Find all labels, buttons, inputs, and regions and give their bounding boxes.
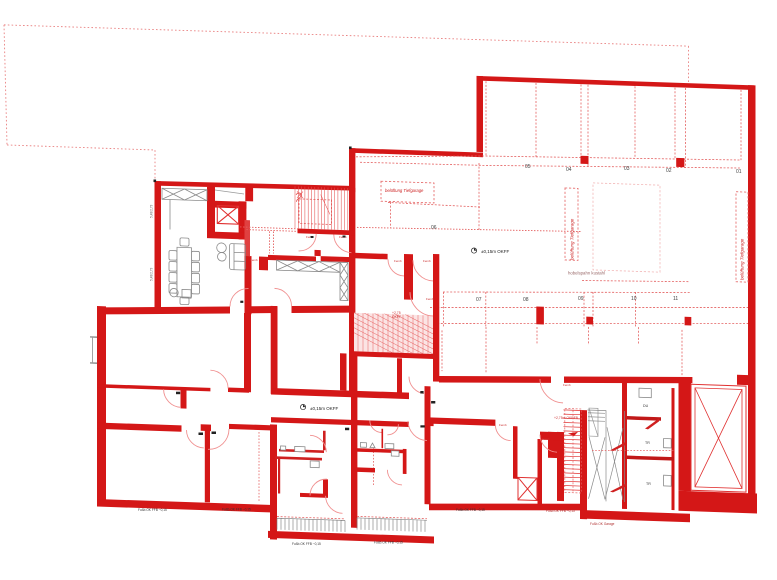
svg-text:hobelspahn kustahl: hobelspahn kustahl (568, 271, 605, 276)
svg-text:10: 10 (631, 296, 637, 302)
svg-text:+2,75m OKRFB: +2,75m OKRFB (554, 416, 579, 420)
svg-text:Fußb.OK FFB −0,15: Fußb.OK FFB −0,15 (456, 508, 485, 512)
svg-text:Femb: Femb (423, 259, 431, 263)
svg-text:Femb: Femb (250, 258, 258, 262)
svg-text:11: 11 (673, 296, 678, 302)
svg-text:belüftung Tiefgarage: belüftung Tiefgarage (740, 238, 745, 280)
svg-text:Fußb.OK Garage: Fußb.OK Garage (590, 522, 615, 526)
svg-text:Femb: Femb (542, 437, 550, 441)
svg-text:Femb: Femb (563, 383, 571, 387)
svg-text:±0,15m OKFF: ±0,15m OKFF (310, 406, 338, 411)
svg-text:DU: DU (643, 404, 649, 408)
svg-text:Femb: Femb (426, 297, 434, 301)
svg-text:06: 06 (431, 225, 437, 231)
svg-text:08: 08 (523, 297, 529, 303)
svg-text:Fußb.OK FFB −0,15: Fußb.OK FFB −0,15 (546, 509, 575, 513)
svg-text:07: 07 (476, 297, 482, 303)
svg-text:Fußb.OK FFB −0,15: Fußb.OK FFB −0,15 (374, 541, 403, 545)
svg-text:±0,15m OKFF: ±0,15m OKFF (481, 249, 509, 254)
svg-text:TR: TR (645, 441, 650, 445)
svg-text:5,48/2,73: 5,48/2,73 (150, 204, 154, 218)
svg-text:Fußb.OK FFB −0,15: Fußb.OK FFB −0,15 (222, 508, 251, 512)
svg-text:04: 04 (566, 167, 572, 173)
svg-text:Femb: Femb (394, 259, 402, 263)
svg-text:03: 03 (624, 166, 630, 172)
svg-text:09: 09 (578, 296, 584, 302)
svg-text:belüftung Tiefgarage: belüftung Tiefgarage (385, 188, 424, 193)
svg-text:belüftung Tiefgarage: belüftung Tiefgarage (570, 218, 575, 260)
svg-text:Fußb.OK FFB −0,15: Fußb.OK FFB −0,15 (138, 508, 167, 512)
svg-text:02: 02 (666, 168, 672, 174)
svg-text:5,48/2,73: 5,48/2,73 (150, 267, 154, 281)
svg-text:Fußb.OK FFB −0,15: Fußb.OK FFB −0,15 (292, 542, 321, 546)
svg-text:Femb: Femb (499, 423, 507, 427)
svg-text:TR: TR (646, 482, 651, 486)
svg-text:05: 05 (525, 164, 531, 170)
svg-text:OKFF: OKFF (392, 315, 401, 319)
svg-text:01: 01 (736, 169, 742, 175)
